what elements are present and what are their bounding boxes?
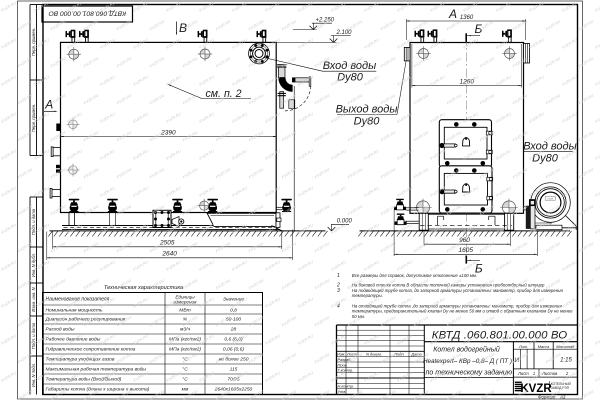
svg-text:Листов: Листов xyxy=(541,371,558,376)
svg-text:Разраб.: Разраб. xyxy=(338,357,352,362)
svg-text:Dy80: Dy80 xyxy=(354,116,381,128)
svg-text:Т.контр.: Т.контр. xyxy=(338,368,354,373)
svg-text:0,06 (0,6): 0,06 (0,6) xyxy=(223,347,244,353)
svg-text:измерения: измерения xyxy=(174,299,198,304)
svg-text:не более 250: не более 250 xyxy=(219,357,249,363)
svg-text:Значение: Значение xyxy=(223,297,244,303)
svg-text:Heatexpert– КВр –0,8– Д ( ПТ ): Heatexpert– КВр –0,8– Д ( ПТ ) xyxy=(423,358,512,365)
svg-text:Лист: Лист xyxy=(346,352,358,357)
svg-text:Выход воды: Выход воды xyxy=(336,103,398,115)
svg-text:Вход воды: Вход воды xyxy=(523,140,576,152)
svg-text:МПа (кгс/см2): МПа (кгс/см2) xyxy=(169,337,201,343)
svg-text:2640х1605х2250: 2640х1605х2250 xyxy=(214,387,253,393)
svg-text:Дата: Дата xyxy=(410,352,422,357)
svg-text:Инв. N дубл.: Инв. N дубл. xyxy=(31,253,36,277)
svg-text:Перв. примен.: Перв. примен. xyxy=(31,104,36,133)
svg-text:В: В xyxy=(179,21,187,35)
svg-text:Dy80: Dy80 xyxy=(532,153,559,165)
svg-text:Пров.: Пров. xyxy=(338,362,348,367)
svg-text:И: И xyxy=(514,357,519,364)
svg-text:2505: 2505 xyxy=(159,240,175,247)
svg-text:960: 960 xyxy=(459,237,470,244)
svg-text:1360: 1360 xyxy=(460,15,474,21)
svg-text:Вход воды: Вход воды xyxy=(323,60,376,72)
svg-text:1605: 1605 xyxy=(459,247,474,254)
svg-text:А3: А3 xyxy=(559,395,566,400)
svg-text:А: А xyxy=(448,7,457,21)
svg-text:0,8: 0,8 xyxy=(230,308,237,314)
svg-text:Н.контр.: Н.контр. xyxy=(338,384,354,389)
svg-text:2640: 2640 xyxy=(161,251,177,258)
svg-text:1260: 1260 xyxy=(460,78,475,85)
svg-text:На боковой стенке котла В обла: На боковой стенке котла В области топочн… xyxy=(352,283,545,288)
svg-text:Подп. и дата: Подп. и дата xyxy=(31,322,36,349)
svg-text:50 мм.: 50 мм. xyxy=(352,314,365,319)
svg-text:0.000: 0.000 xyxy=(337,219,353,225)
svg-text:Максимальная рабочая температу: Максимальная рабочая температура воды xyxy=(46,367,147,373)
svg-text:ЗАВОД РЭП: ЗАВОД РЭП xyxy=(551,386,570,390)
svg-text:°С: °С xyxy=(182,367,188,373)
svg-text:3: 3 xyxy=(337,288,340,294)
svg-text:На подводящей трубе котла, д: На подводящей трубе котла, до запорной а… xyxy=(352,288,564,293)
svg-text:по техническому заданию: по техническому заданию xyxy=(426,368,513,376)
svg-text:115: 115 xyxy=(230,367,238,373)
svg-text:Габариты котла (длина х ширина: Габариты котла (длина х ширина х высота) xyxy=(46,387,150,393)
svg-text:КВТД .060.801.00.000 ВО: КВТД .060.801.00.000 ВО xyxy=(432,329,567,341)
svg-text:°С: °С xyxy=(182,357,188,363)
svg-text:2390: 2390 xyxy=(160,129,176,136)
svg-text:температуры.: температуры. xyxy=(352,293,383,298)
svg-text:%: % xyxy=(183,317,188,323)
svg-text:N докум.: N докум. xyxy=(366,352,382,357)
svg-text:Расход воды: Расход воды xyxy=(46,327,75,333)
svg-text:Техническая характеристика: Техническая характеристика xyxy=(104,285,183,291)
svg-text:Котел водогрейный: Котел водогрейный xyxy=(433,345,500,353)
svg-text:Подп.: Подп. xyxy=(394,352,404,357)
svg-text:Наименование показателя: Наименование показателя xyxy=(46,297,110,303)
svg-text:А: А xyxy=(44,98,53,112)
svg-text:Лист: Лист xyxy=(517,371,529,376)
svg-text:28: 28 xyxy=(230,327,237,333)
svg-text:температуры, предохранительный: температуры, предохранительный клапан Dу… xyxy=(352,309,573,314)
svg-text:Dy80: Dy80 xyxy=(337,72,364,84)
svg-text:Номинальная мощность: Номинальная мощность xyxy=(46,308,104,314)
svg-text:На отводящей трубе котла ,до з: На отводящей трубе котла ,до запорной ар… xyxy=(352,303,563,308)
svg-text:Рабочее давление воды: Рабочее давление воды xyxy=(46,337,101,343)
svg-text:50-100: 50-100 xyxy=(226,317,242,323)
svg-text:KVZR: KVZR xyxy=(520,383,552,395)
svg-text:0,6 (6,0): 0,6 (6,0) xyxy=(224,337,243,343)
svg-text:70/95: 70/95 xyxy=(227,377,240,383)
svg-text:Лит.: Лит. xyxy=(518,344,528,349)
svg-text:Масштаб: Масштаб xyxy=(556,344,575,349)
svg-text:Перв. примен.: Перв. примен. xyxy=(31,28,36,57)
svg-text:Температура воды (Вход/Выход): Температура воды (Вход/Выход) xyxy=(46,377,122,383)
svg-text:°С: °С xyxy=(182,377,188,383)
svg-text:1: 1 xyxy=(533,371,535,376)
svg-text:+2.250: +2.250 xyxy=(316,18,335,24)
svg-text:Масса: Масса xyxy=(538,344,550,349)
svg-text:мм: мм xyxy=(182,388,189,393)
svg-text:Подп. и дата: Подп. и дата xyxy=(31,208,36,235)
svg-text:Изм.: Изм. xyxy=(337,352,345,357)
svg-text:1:15: 1:15 xyxy=(560,358,572,364)
svg-text:м3/ч: м3/ч xyxy=(180,327,190,333)
svg-text:Формат: Формат xyxy=(538,395,556,400)
svg-text:КВТД.060.801.00.000 ВО: КВТД.060.801.00.000 ВО xyxy=(48,9,126,16)
svg-text:Инв. N подл.: Инв. N подл. xyxy=(31,363,36,387)
svg-text:Утв.: Утв. xyxy=(338,389,347,394)
svg-text:см. п. 2: см. п. 2 xyxy=(206,88,242,100)
svg-text:МВт: МВт xyxy=(179,308,190,314)
svg-text:Б: Б xyxy=(475,22,483,36)
svg-text:Диапазон рабочего регулировани: Диапазон рабочего регулирования xyxy=(45,317,126,323)
svg-text:Взам. инв. N: Взам. инв. N xyxy=(31,286,36,311)
svg-text:KVZR: KVZR xyxy=(547,199,553,201)
svg-text:Все размеры для справок, допус: Все размеры для справок, допустимое откл… xyxy=(352,273,477,278)
svg-text:Гидравлическое сопротивление к: Гидравлическое сопротивление котла xyxy=(46,347,136,353)
svg-text:2.100: 2.100 xyxy=(336,30,353,36)
svg-text:МПа (кгс/см2): МПа (кгс/см2) xyxy=(169,347,201,353)
svg-text:1: 1 xyxy=(337,273,340,279)
svg-text:4: 4 xyxy=(337,303,340,309)
svg-text:Температура уходящих газов: Температура уходящих газов xyxy=(46,357,115,363)
